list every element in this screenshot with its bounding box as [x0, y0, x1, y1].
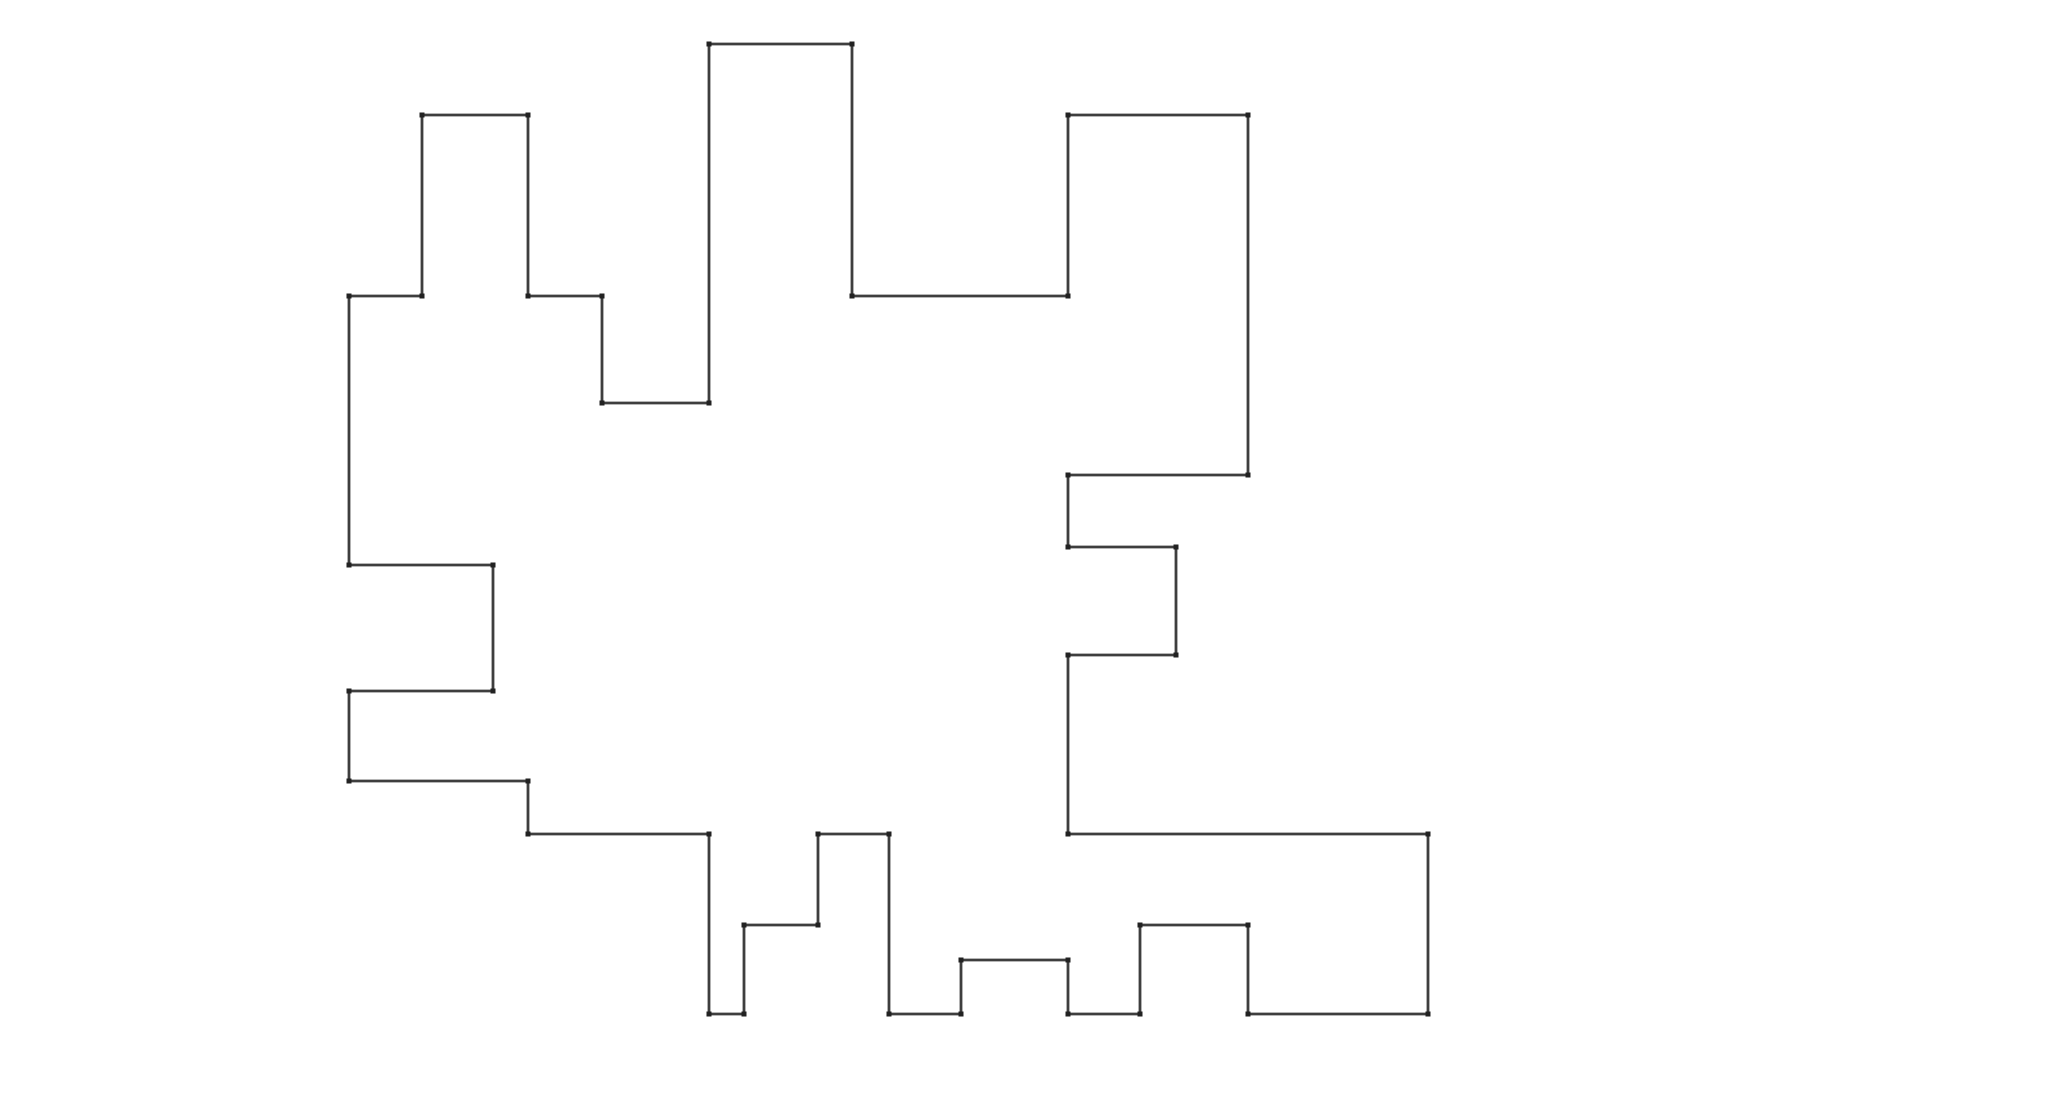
vertex-marker — [526, 832, 531, 837]
rectilinear-polygon — [0, 0, 2048, 1107]
vertex-marker — [420, 294, 425, 299]
vertex-marker — [347, 563, 352, 568]
vertex-marker — [1174, 545, 1179, 550]
vertex-marker — [526, 113, 531, 118]
vertex-marker — [742, 1012, 747, 1017]
vertex-marker — [1138, 923, 1143, 928]
vertex-marker — [526, 779, 531, 784]
vertex-marker — [1066, 832, 1071, 837]
vertex-marker — [887, 1012, 892, 1017]
vertex-marker — [1066, 1012, 1071, 1017]
vertex-marker — [707, 832, 712, 837]
vertex-marker — [600, 294, 605, 299]
vertex-marker — [816, 832, 821, 837]
vertex-marker — [1138, 1012, 1143, 1017]
vertex-marker — [816, 923, 821, 928]
vertex-marker — [1066, 113, 1071, 118]
vertex-marker — [600, 401, 605, 406]
vertex-marker — [887, 832, 892, 837]
vertex-marker — [1246, 473, 1251, 478]
figure-canvas — [0, 0, 2048, 1107]
vertex-marker — [959, 1012, 964, 1017]
vertex-marker — [526, 294, 531, 299]
vertex-marker — [1066, 473, 1071, 478]
vertex-marker — [1174, 653, 1179, 658]
vertex-marker — [1066, 653, 1071, 658]
vertex-marker — [347, 689, 352, 694]
vertex-marker — [1246, 923, 1251, 928]
vertex-marker — [347, 294, 352, 299]
vertex-marker — [1066, 958, 1071, 963]
vertex-marker — [742, 923, 747, 928]
vertex-marker — [491, 563, 496, 568]
polygon-outline — [349, 44, 1428, 1014]
vertex-marker — [1066, 545, 1071, 550]
vertex-marker — [707, 1012, 712, 1017]
vertex-marker — [850, 42, 855, 47]
vertex-marker — [850, 294, 855, 299]
vertex-marker — [707, 401, 712, 406]
vertex-marker — [1246, 1012, 1251, 1017]
vertex-marker — [1246, 113, 1251, 118]
vertex-marker — [1426, 832, 1431, 837]
vertex-marker — [959, 958, 964, 963]
vertex-marker — [491, 689, 496, 694]
vertex-marker — [707, 42, 712, 47]
vertex-marker — [1426, 1012, 1431, 1017]
vertex-marker — [1066, 294, 1071, 299]
vertex-marker — [420, 113, 425, 118]
vertex-marker — [347, 779, 352, 784]
